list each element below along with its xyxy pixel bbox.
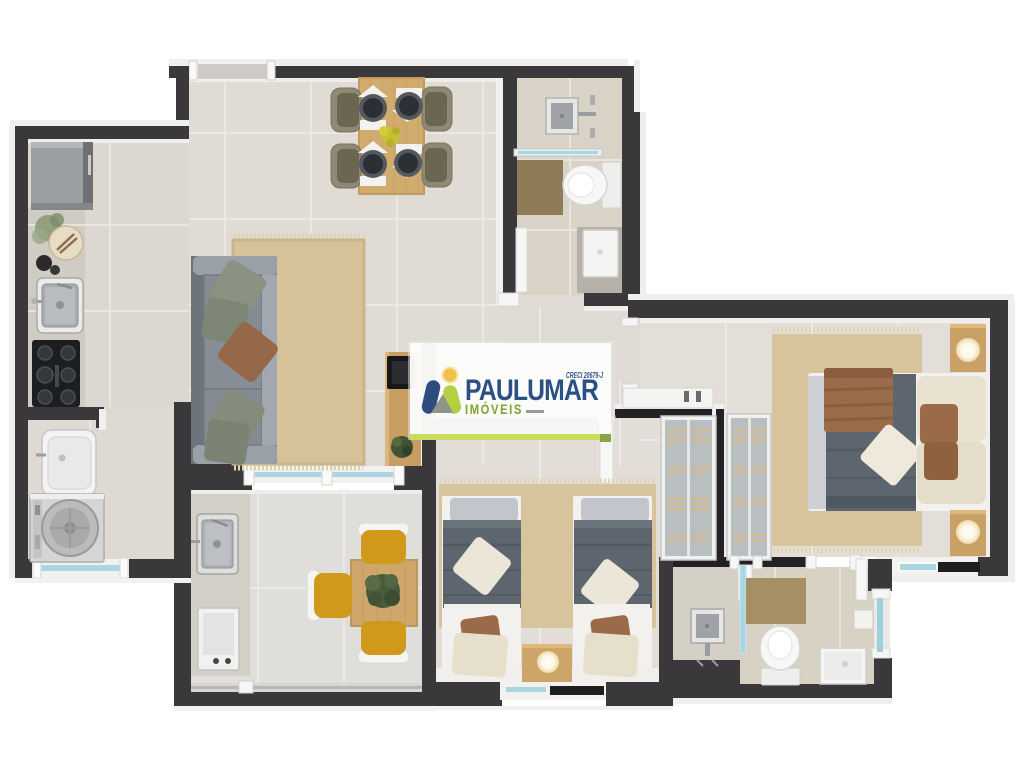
svg-text:IMÓVEIS: IMÓVEIS	[465, 400, 523, 417]
svg-text:CRECI 20679-J: CRECI 20679-J	[566, 371, 603, 380]
